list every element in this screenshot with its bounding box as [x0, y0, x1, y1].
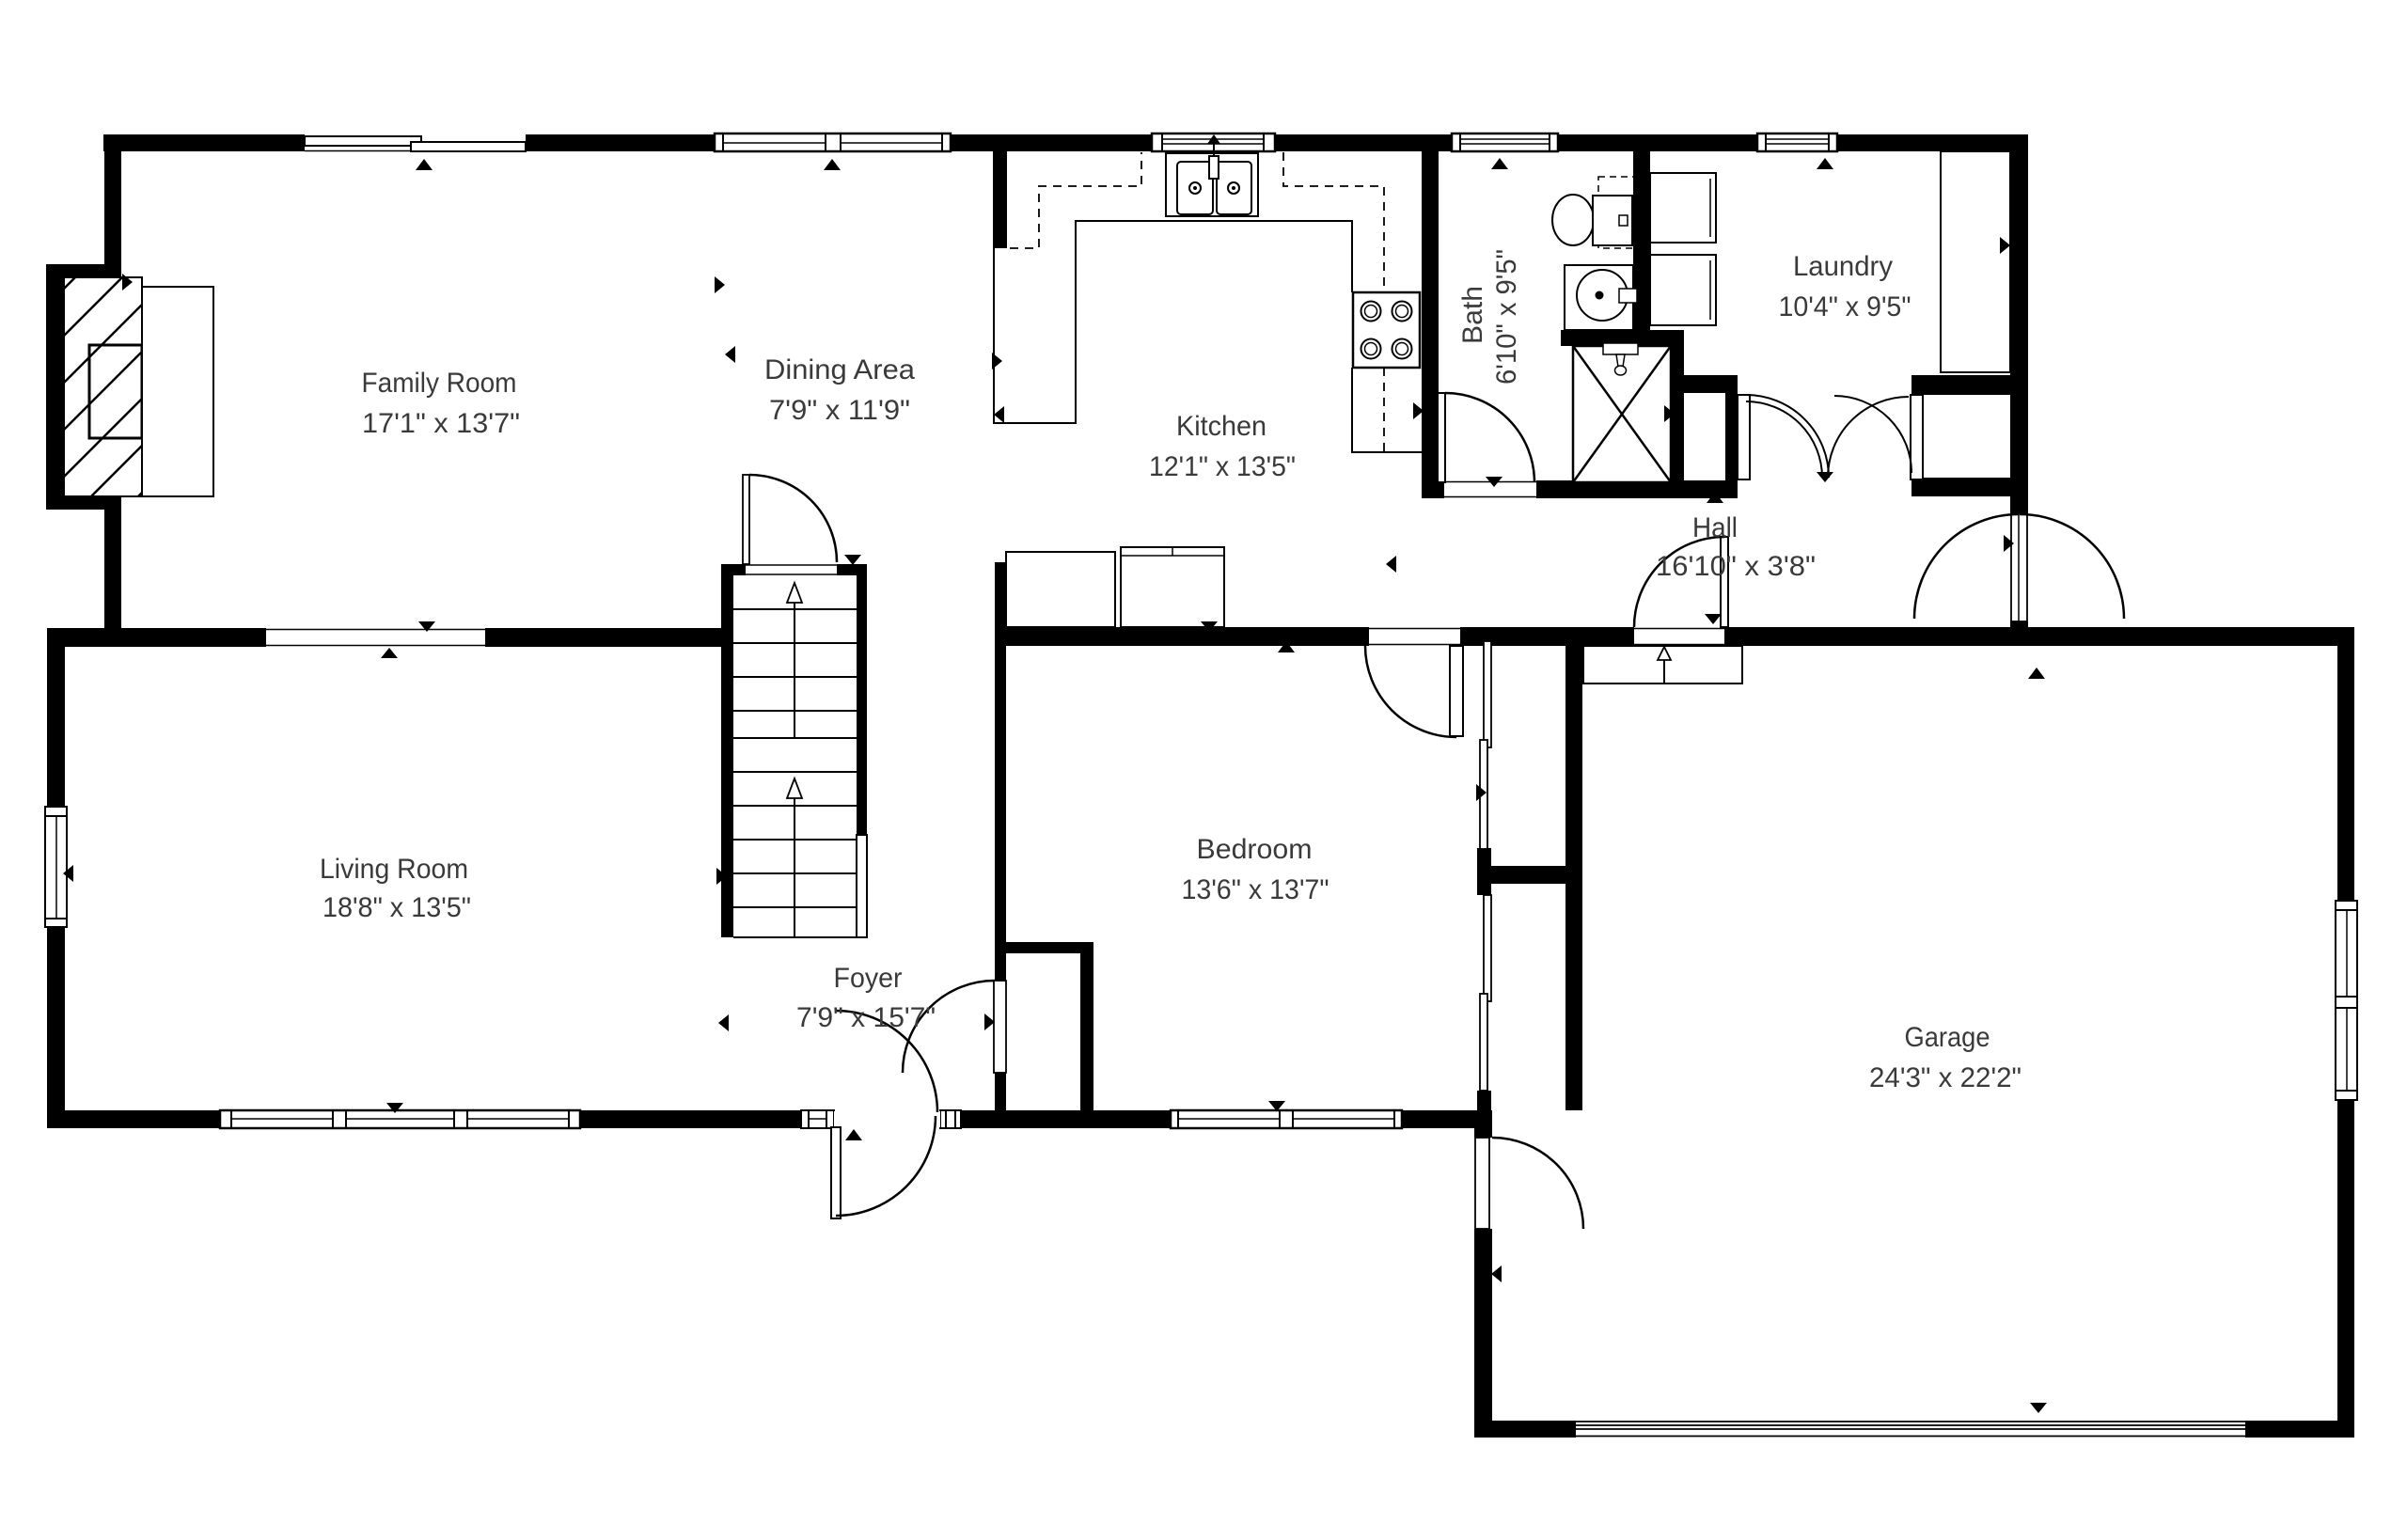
svg-text:Hall: Hall: [1692, 512, 1738, 543]
svg-text:6'10" x 9'5": 6'10" x 9'5": [1491, 249, 1522, 385]
svg-text:Kitchen: Kitchen: [1176, 411, 1266, 442]
svg-text:Living Room: Living Room: [320, 854, 468, 885]
svg-text:17'1" x 13'7": 17'1" x 13'7": [362, 408, 520, 439]
svg-text:Bedroom: Bedroom: [1197, 834, 1313, 865]
svg-text:Dining Area: Dining Area: [764, 354, 915, 385]
svg-text:10'4" x 9'5": 10'4" x 9'5": [1779, 291, 1911, 322]
svg-text:12'1" x 13'5": 12'1" x 13'5": [1149, 451, 1296, 482]
svg-text:16'10" x 3'8": 16'10" x 3'8": [1656, 551, 1816, 582]
svg-text:24'3" x 22'2": 24'3" x 22'2": [1869, 1062, 2022, 1093]
svg-text:Family Room: Family Room: [362, 368, 517, 399]
svg-text:Garage: Garage: [1905, 1022, 1990, 1053]
svg-text:18'8" x 13'5": 18'8" x 13'5": [323, 892, 471, 923]
svg-text:Foyer: Foyer: [834, 963, 903, 994]
svg-text:Bath: Bath: [1457, 286, 1488, 344]
svg-text:Laundry: Laundry: [1793, 251, 1893, 282]
svg-text:13'6" x 13'7": 13'6" x 13'7": [1182, 874, 1329, 905]
svg-text:7'9" x 15'7": 7'9" x 15'7": [796, 1002, 936, 1033]
svg-text:7'9" x 11'9": 7'9" x 11'9": [769, 395, 910, 426]
